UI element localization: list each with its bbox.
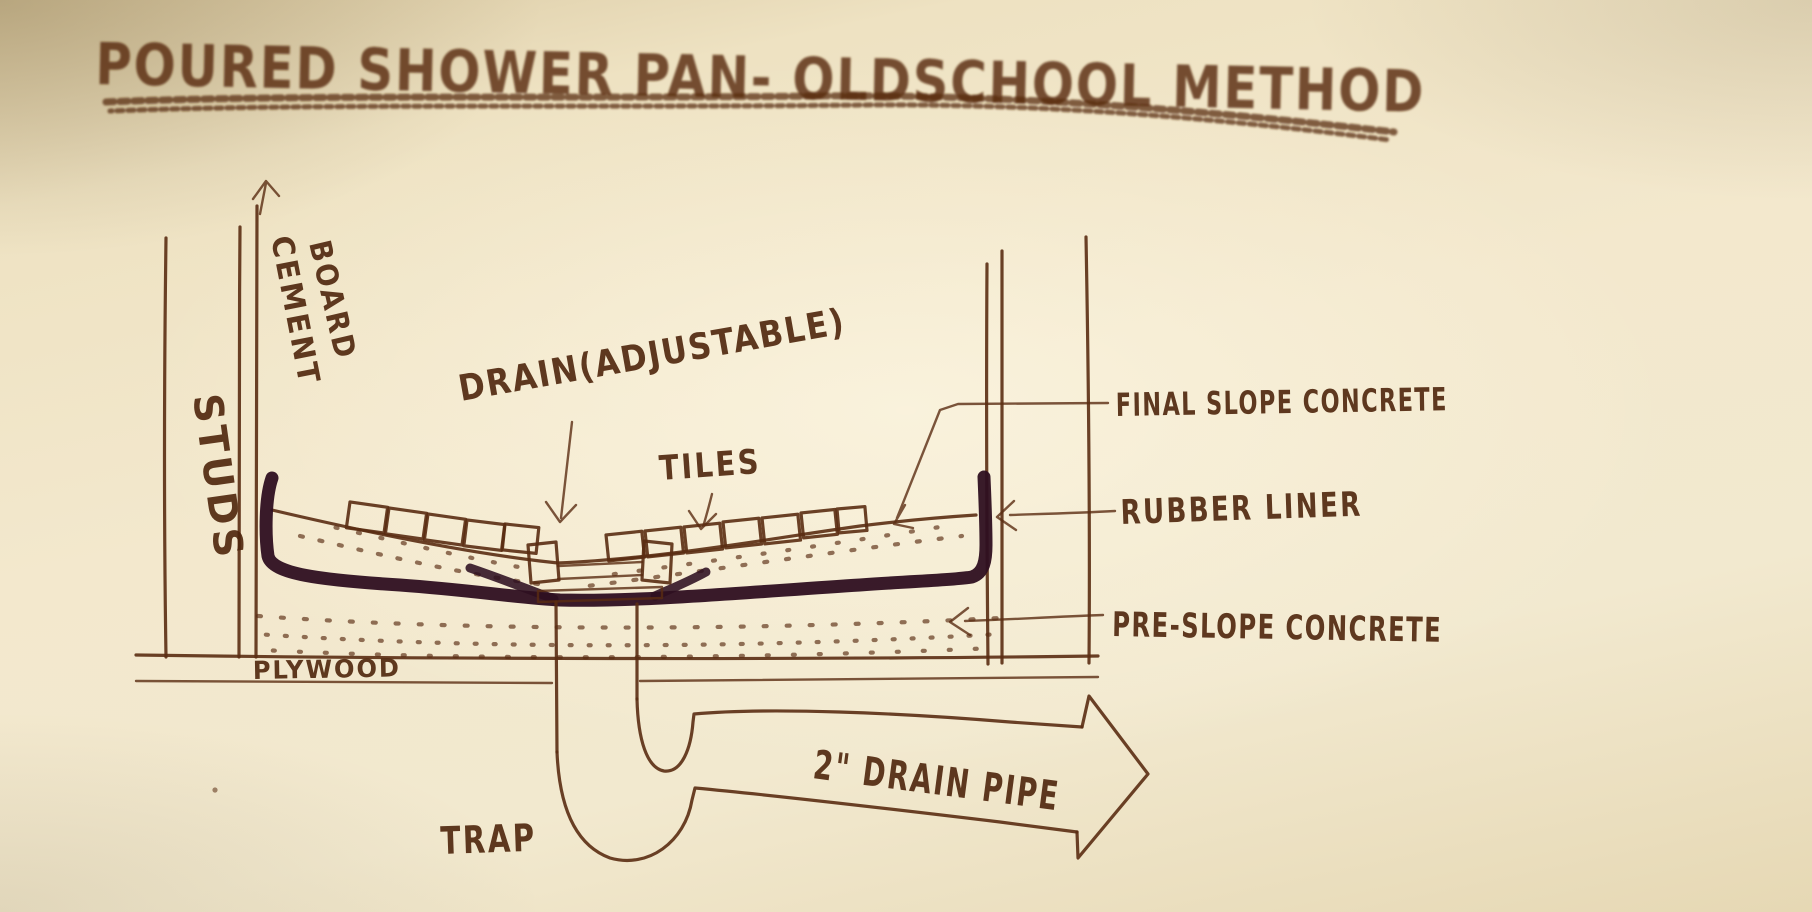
tile: [385, 508, 426, 539]
drain-ring-lines: [558, 562, 642, 579]
label-plywood: PLYWOOD: [253, 653, 401, 685]
label-trap: TRAP: [440, 816, 537, 863]
drain-callout-arrow: [546, 422, 576, 522]
right-wall-line-1: [987, 264, 988, 664]
plywood-bottom-line-right: [640, 677, 1098, 681]
drain-pipe-arrowhead: [1077, 696, 1148, 858]
label-pre-slope-concrete: PRE-SLOPE CONCRETE: [1112, 605, 1443, 651]
stud-line-inner: [239, 227, 240, 657]
label-final-slope-concrete: FINAL SLOPE CONCRETE: [1115, 380, 1448, 424]
shower-pan: [256, 477, 1000, 657]
label-tiles: TILES: [658, 442, 763, 489]
pre-slope-leader-arrow: [950, 608, 1103, 635]
label-rubber-liner: RUBBER LINER: [1120, 485, 1363, 533]
pre-slope-concrete-stipple: [256, 616, 1000, 657]
label-drain-pipe: 2" DRAIN PIPE: [811, 742, 1063, 820]
photo-of-hand-drawn-sketch: POURED SHOWER PAN- OLDSCHOOL METHOD STUD…: [0, 0, 1812, 912]
ink-dot: [212, 787, 217, 792]
shower-pan-diagram: POURED SHOWER PAN- OLDSCHOOL METHOD STUD…: [0, 0, 1812, 912]
right-wall: [987, 237, 1090, 664]
tile: [346, 502, 387, 533]
rubber-liner-line: [266, 477, 986, 600]
label-drain-adjustable: DRAIN(ADJUSTABLE): [455, 301, 848, 409]
tile: [464, 520, 505, 550]
subfloor: PLYWOOD: [136, 653, 1098, 685]
label-studs: STUDS: [183, 391, 252, 564]
right-wall-line-3: [1086, 237, 1089, 663]
cement-board-line: [256, 206, 257, 657]
tile: [502, 524, 539, 553]
tile: [606, 531, 645, 561]
title-group: POURED SHOWER PAN- OLDSCHOOL METHOD: [95, 30, 1426, 140]
drain-pipe-wall-left: [556, 602, 557, 752]
rubber-liner-leader-arrow: [997, 501, 1115, 530]
tile: [424, 514, 465, 545]
plumbing: 2" DRAIN PIPE TRAP: [440, 602, 1148, 863]
stud-line-outer: [165, 238, 167, 657]
